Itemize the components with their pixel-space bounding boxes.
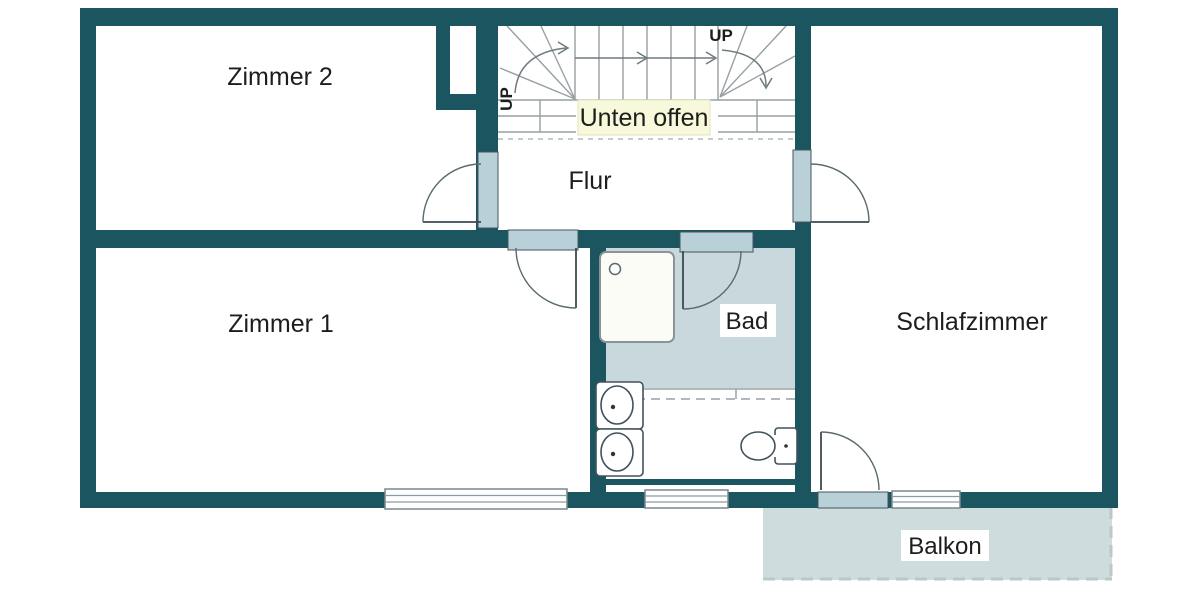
stair-up-label-right: UP bbox=[709, 26, 733, 45]
flush-button-icon bbox=[784, 444, 788, 448]
stair-winder-left bbox=[498, 26, 576, 132]
room-label-zimmer2: Zimmer 2 bbox=[227, 63, 333, 91]
window-bedroom bbox=[892, 491, 960, 508]
room-label-schlafzimmer: Schlafzimmer bbox=[896, 308, 1047, 336]
wall-chimney-bottom bbox=[436, 94, 478, 110]
shower bbox=[600, 252, 674, 342]
sink-top bbox=[596, 382, 643, 429]
room-label-flur: Flur bbox=[568, 167, 611, 195]
wall-bedroom-left bbox=[795, 26, 811, 492]
wall-right bbox=[1102, 8, 1118, 508]
door-balcony bbox=[821, 432, 879, 490]
stair-walk-line bbox=[515, 42, 772, 93]
wall-top bbox=[80, 8, 1118, 26]
room-label-balkon: Balkon bbox=[908, 533, 981, 560]
window-bath bbox=[645, 490, 728, 508]
sink-bottom bbox=[596, 429, 643, 476]
door-frame-room1 bbox=[508, 230, 578, 250]
stair-up-label-left: UP bbox=[497, 87, 516, 111]
faucet-icon bbox=[611, 405, 615, 409]
shower-drain-icon bbox=[610, 264, 621, 275]
door-bedroom bbox=[811, 164, 869, 222]
floor-plan: Zimmer 2 Flur Zimmer 1 Bad Schlafzimmer … bbox=[0, 0, 1200, 600]
stair-open-below-label: Unten offen bbox=[580, 104, 709, 132]
wall-bath-inner-bottom bbox=[606, 479, 795, 485]
door-room2 bbox=[423, 164, 481, 222]
room-label-zimmer1: Zimmer 1 bbox=[228, 310, 334, 338]
wall-left bbox=[80, 8, 96, 508]
faucet-icon bbox=[611, 452, 615, 456]
door-room1 bbox=[516, 248, 576, 308]
door-frame-bedroom bbox=[793, 150, 811, 222]
door-frame-balcony bbox=[818, 492, 888, 508]
toilet bbox=[741, 428, 797, 464]
room-label-bad: Bad bbox=[726, 308, 769, 335]
door-frame-bath bbox=[680, 232, 753, 252]
window-room1 bbox=[385, 489, 567, 509]
